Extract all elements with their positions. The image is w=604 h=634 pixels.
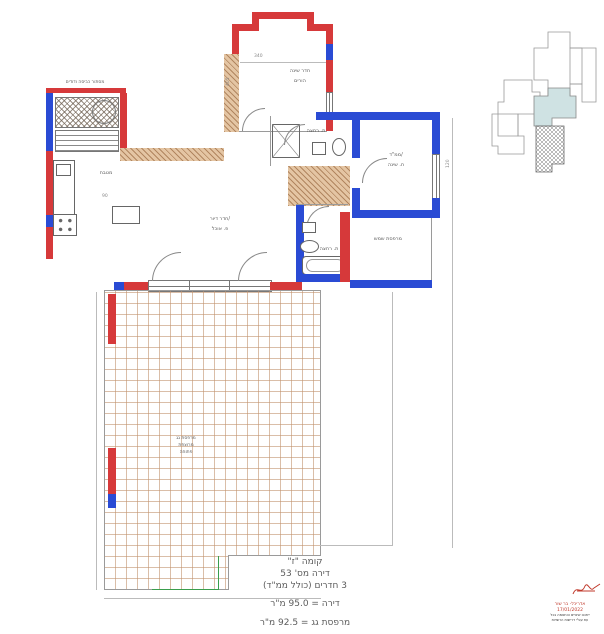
dimension-label: 90 (102, 194, 108, 199)
room-label-laundry: מסתור כביסה ודודים (44, 80, 126, 86)
wall-segment-red (252, 12, 314, 19)
room-label-bedroom: חדר שינה (278, 68, 322, 74)
wall-segment-red (108, 294, 116, 344)
key-plan (478, 18, 604, 180)
terrace-boundary (320, 290, 321, 556)
roof-outline (392, 292, 393, 545)
floor-plan-canvas: 340 405 חדר שינה הורים מסתור כביסה ודודי… (0, 0, 604, 634)
louver-vent (55, 130, 119, 152)
terrace-boundary (104, 290, 105, 590)
room-label-mamad-1: ממ"ד/ (372, 152, 420, 158)
sink-icon (312, 142, 326, 155)
wall-segment-blue (326, 44, 333, 60)
door-arc (242, 108, 265, 131)
wall-segment-red (326, 60, 333, 92)
dimension-label: 405 (226, 77, 231, 86)
wall-segment-blue (108, 494, 116, 508)
railing-blue (350, 280, 432, 288)
room-label-terrace-1: מרפסת גג (156, 436, 216, 442)
window (432, 154, 440, 200)
kitchen-sink (56, 164, 71, 176)
wall-segment-blue (352, 112, 440, 120)
interior-wall-line (270, 116, 271, 166)
wall-segment-red (326, 28, 333, 44)
toilet-icon (332, 138, 346, 156)
title-terrace-area: מרפסת גג = 92.5 מ"ר (200, 617, 410, 629)
room-label-sun-balcony: מרפסת שמש (358, 236, 418, 242)
wall-segment-red (108, 448, 116, 494)
room-label-terrace-3: פתוחה (156, 450, 216, 456)
dimension-line (96, 292, 97, 590)
wall-segment-red (46, 88, 126, 93)
wall-segment-red (120, 93, 127, 153)
stamp-note-2: עת עפ"י דרישות הרשויות (536, 618, 604, 623)
key-plan-terrace-hatch (536, 126, 564, 172)
terrace-boundary (104, 290, 321, 291)
wall-segment-red (232, 24, 239, 56)
room-label-living-1: חדר דיור/ (192, 216, 248, 222)
title-apartment-area: דירה = 95.0 מ"ר (200, 598, 410, 610)
title-block: קומה "ז" דירה מס' 53 3 חדרים (כולל ממ"ד)… (200, 556, 410, 629)
room-label-living-2: פ. אוכל (192, 226, 248, 232)
dimension-label: 120 (446, 159, 451, 168)
wall-segment-red (46, 227, 53, 259)
title-rooms: 3 חדרים (כולל ממ"ד) (200, 580, 410, 592)
wall-segment-hatched (224, 54, 239, 132)
wall-segment-red (340, 212, 350, 282)
wall-segment-blue (432, 112, 440, 154)
wall-segment-blue (316, 112, 352, 120)
signature-icon (537, 582, 603, 598)
key-plan-unit-outline (570, 48, 596, 102)
wall-mass-hatched (288, 166, 350, 206)
stove-icon (53, 214, 77, 236)
dimension-label: 340 (254, 54, 263, 59)
door-arc (152, 252, 181, 281)
wall-segment-blue (352, 112, 360, 158)
roof-outline (320, 545, 393, 546)
balcony-edge-line (431, 218, 432, 280)
sink-icon (302, 222, 316, 233)
boiler-icon (92, 100, 116, 124)
wall-segment-red (46, 151, 53, 215)
title-floor: קומה "ז" (200, 556, 410, 568)
title-apartment: דירה מס' 53 (200, 568, 410, 580)
key-plan-unit-outline (492, 114, 524, 154)
interior-wall-line (296, 204, 348, 205)
room-label-bedroom-2: הורים (278, 78, 322, 84)
dimension-line (240, 62, 326, 63)
wall-segment-blue (352, 210, 440, 218)
wall-segment-blue (46, 93, 53, 151)
room-label-mamad-2: ח. שינה (372, 162, 420, 168)
wall-segment-hatched (120, 148, 224, 161)
room-label-kitchen: מטבח (86, 170, 126, 176)
door-arc (238, 252, 267, 281)
key-plan-unit-outline (534, 32, 582, 96)
kitchen-island (112, 206, 140, 224)
dimension-line (452, 118, 453, 548)
room-label-terrace-2: מרוצפת (156, 443, 216, 449)
architect-stamp: אדריכל- בר שור 17/01/2022 ייתכנו שינויים… (536, 582, 604, 622)
wall-segment-blue (352, 188, 360, 218)
wall-segment-blue (46, 215, 53, 227)
